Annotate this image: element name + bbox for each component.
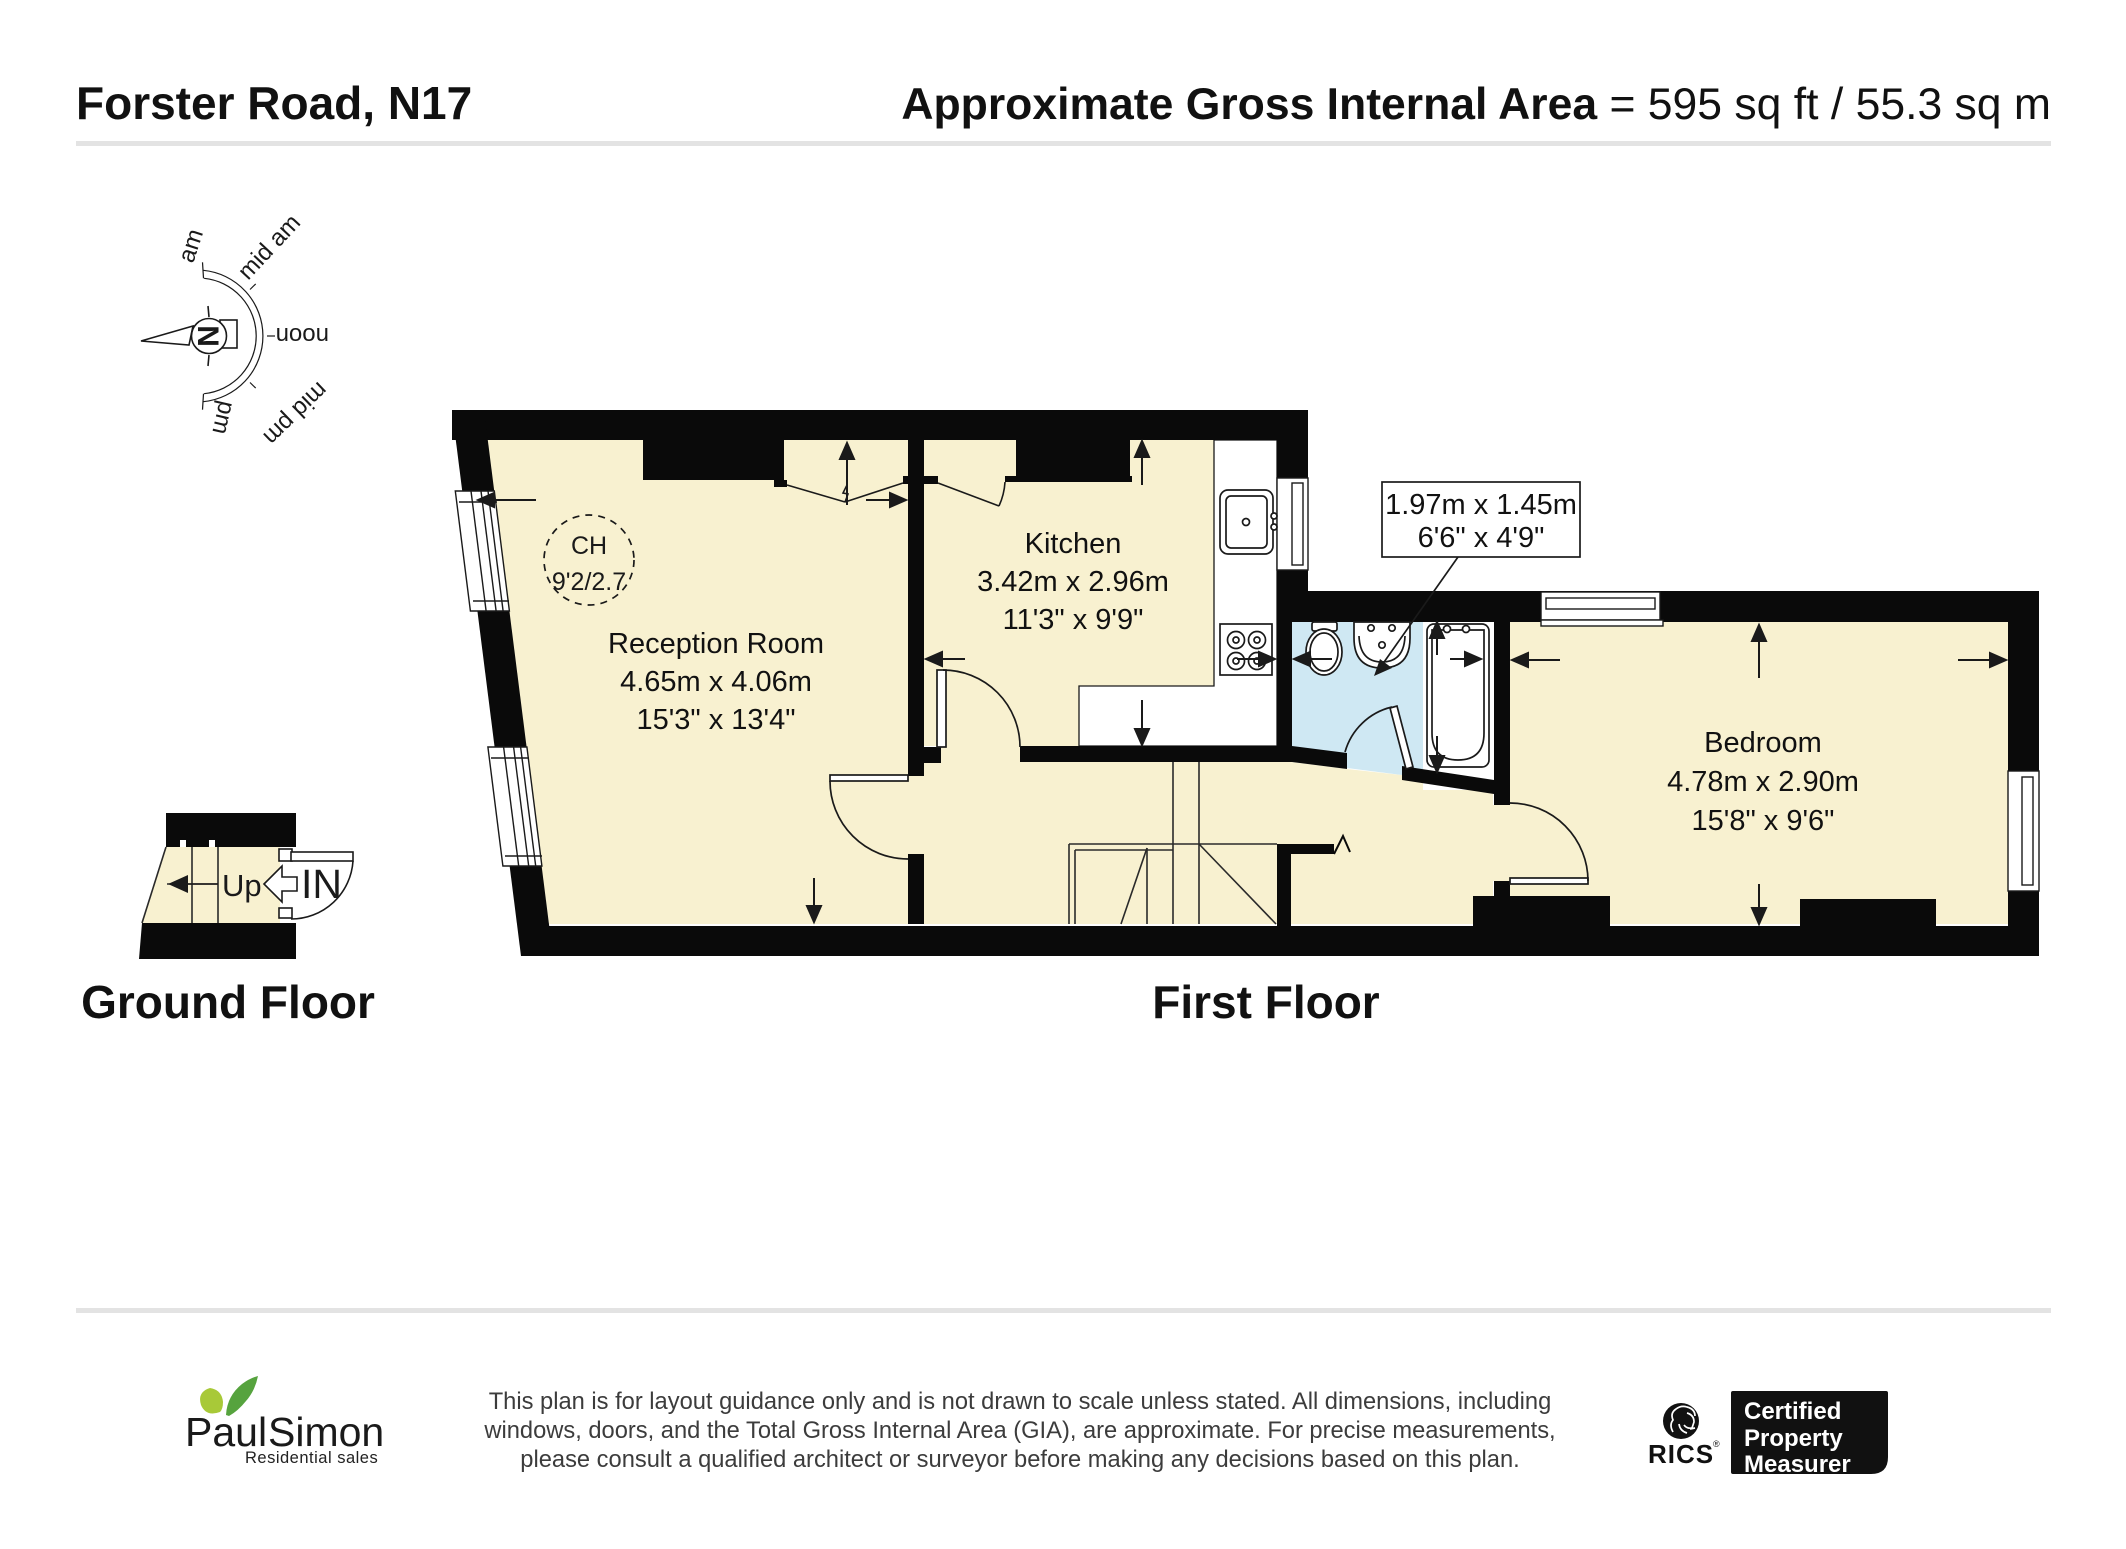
- svg-text:Residential sales: Residential sales: [245, 1449, 378, 1467]
- svg-text:First Floor: First Floor: [1152, 976, 1380, 1028]
- svg-text:3.42m x 2.96m: 3.42m x 2.96m: [977, 566, 1169, 598]
- svg-text:9'2/2.7: 9'2/2.7: [552, 568, 626, 596]
- svg-text:4.78m x 2.90m: 4.78m x 2.90m: [1667, 766, 1859, 798]
- svg-text:Up: Up: [222, 868, 262, 903]
- svg-text:Property: Property: [1744, 1425, 1843, 1452]
- svg-text:Ground Floor: Ground Floor: [81, 976, 375, 1028]
- svg-text:15'3" x 13'4": 15'3" x 13'4": [636, 704, 795, 736]
- svg-text:IN: IN: [301, 861, 342, 907]
- svg-text:CH: CH: [571, 532, 607, 560]
- svg-text:Reception Room: Reception Room: [608, 628, 824, 660]
- svg-text:Measurer: Measurer: [1744, 1451, 1851, 1478]
- svg-text:6'6" x 4'9": 6'6" x 4'9": [1418, 522, 1545, 554]
- svg-text:11'3" x 9'9": 11'3" x 9'9": [1003, 604, 1144, 636]
- svg-text:windows, doors, and the Total: windows, doors, and the Total Gross Inte…: [483, 1418, 1555, 1444]
- svg-text:1.97m x 1.45m: 1.97m x 1.45m: [1385, 489, 1577, 521]
- svg-text:please consult a qualified arc: please consult a qualified architect or …: [520, 1447, 1519, 1473]
- svg-text:mid pm: mid pm: [258, 376, 333, 450]
- svg-text:noon: noon: [276, 322, 329, 349]
- svg-text:Forster Road, N17: Forster Road, N17: [76, 77, 472, 129]
- svg-text:am: am: [173, 226, 209, 266]
- svg-text:mid am: mid am: [233, 209, 306, 285]
- svg-text:Approximate Gross Internal Are: Approximate Gross Internal Area = 595 sq…: [901, 80, 2051, 129]
- svg-text:15'8" x 9'6": 15'8" x 9'6": [1692, 805, 1835, 837]
- svg-text:pm: pm: [206, 398, 240, 437]
- svg-text:Certified: Certified: [1744, 1398, 1841, 1425]
- svg-text:4.65m x 4.06m: 4.65m x 4.06m: [620, 666, 812, 698]
- svg-text:RICS: RICS: [1648, 1439, 1714, 1469]
- svg-text:®: ®: [1713, 1439, 1720, 1449]
- svg-text:N: N: [193, 325, 226, 347]
- svg-text:Bedroom: Bedroom: [1704, 727, 1822, 759]
- svg-text:Kitchen: Kitchen: [1025, 528, 1122, 560]
- svg-text:This plan is for layout guidan: This plan is for layout guidance only an…: [489, 1389, 1552, 1415]
